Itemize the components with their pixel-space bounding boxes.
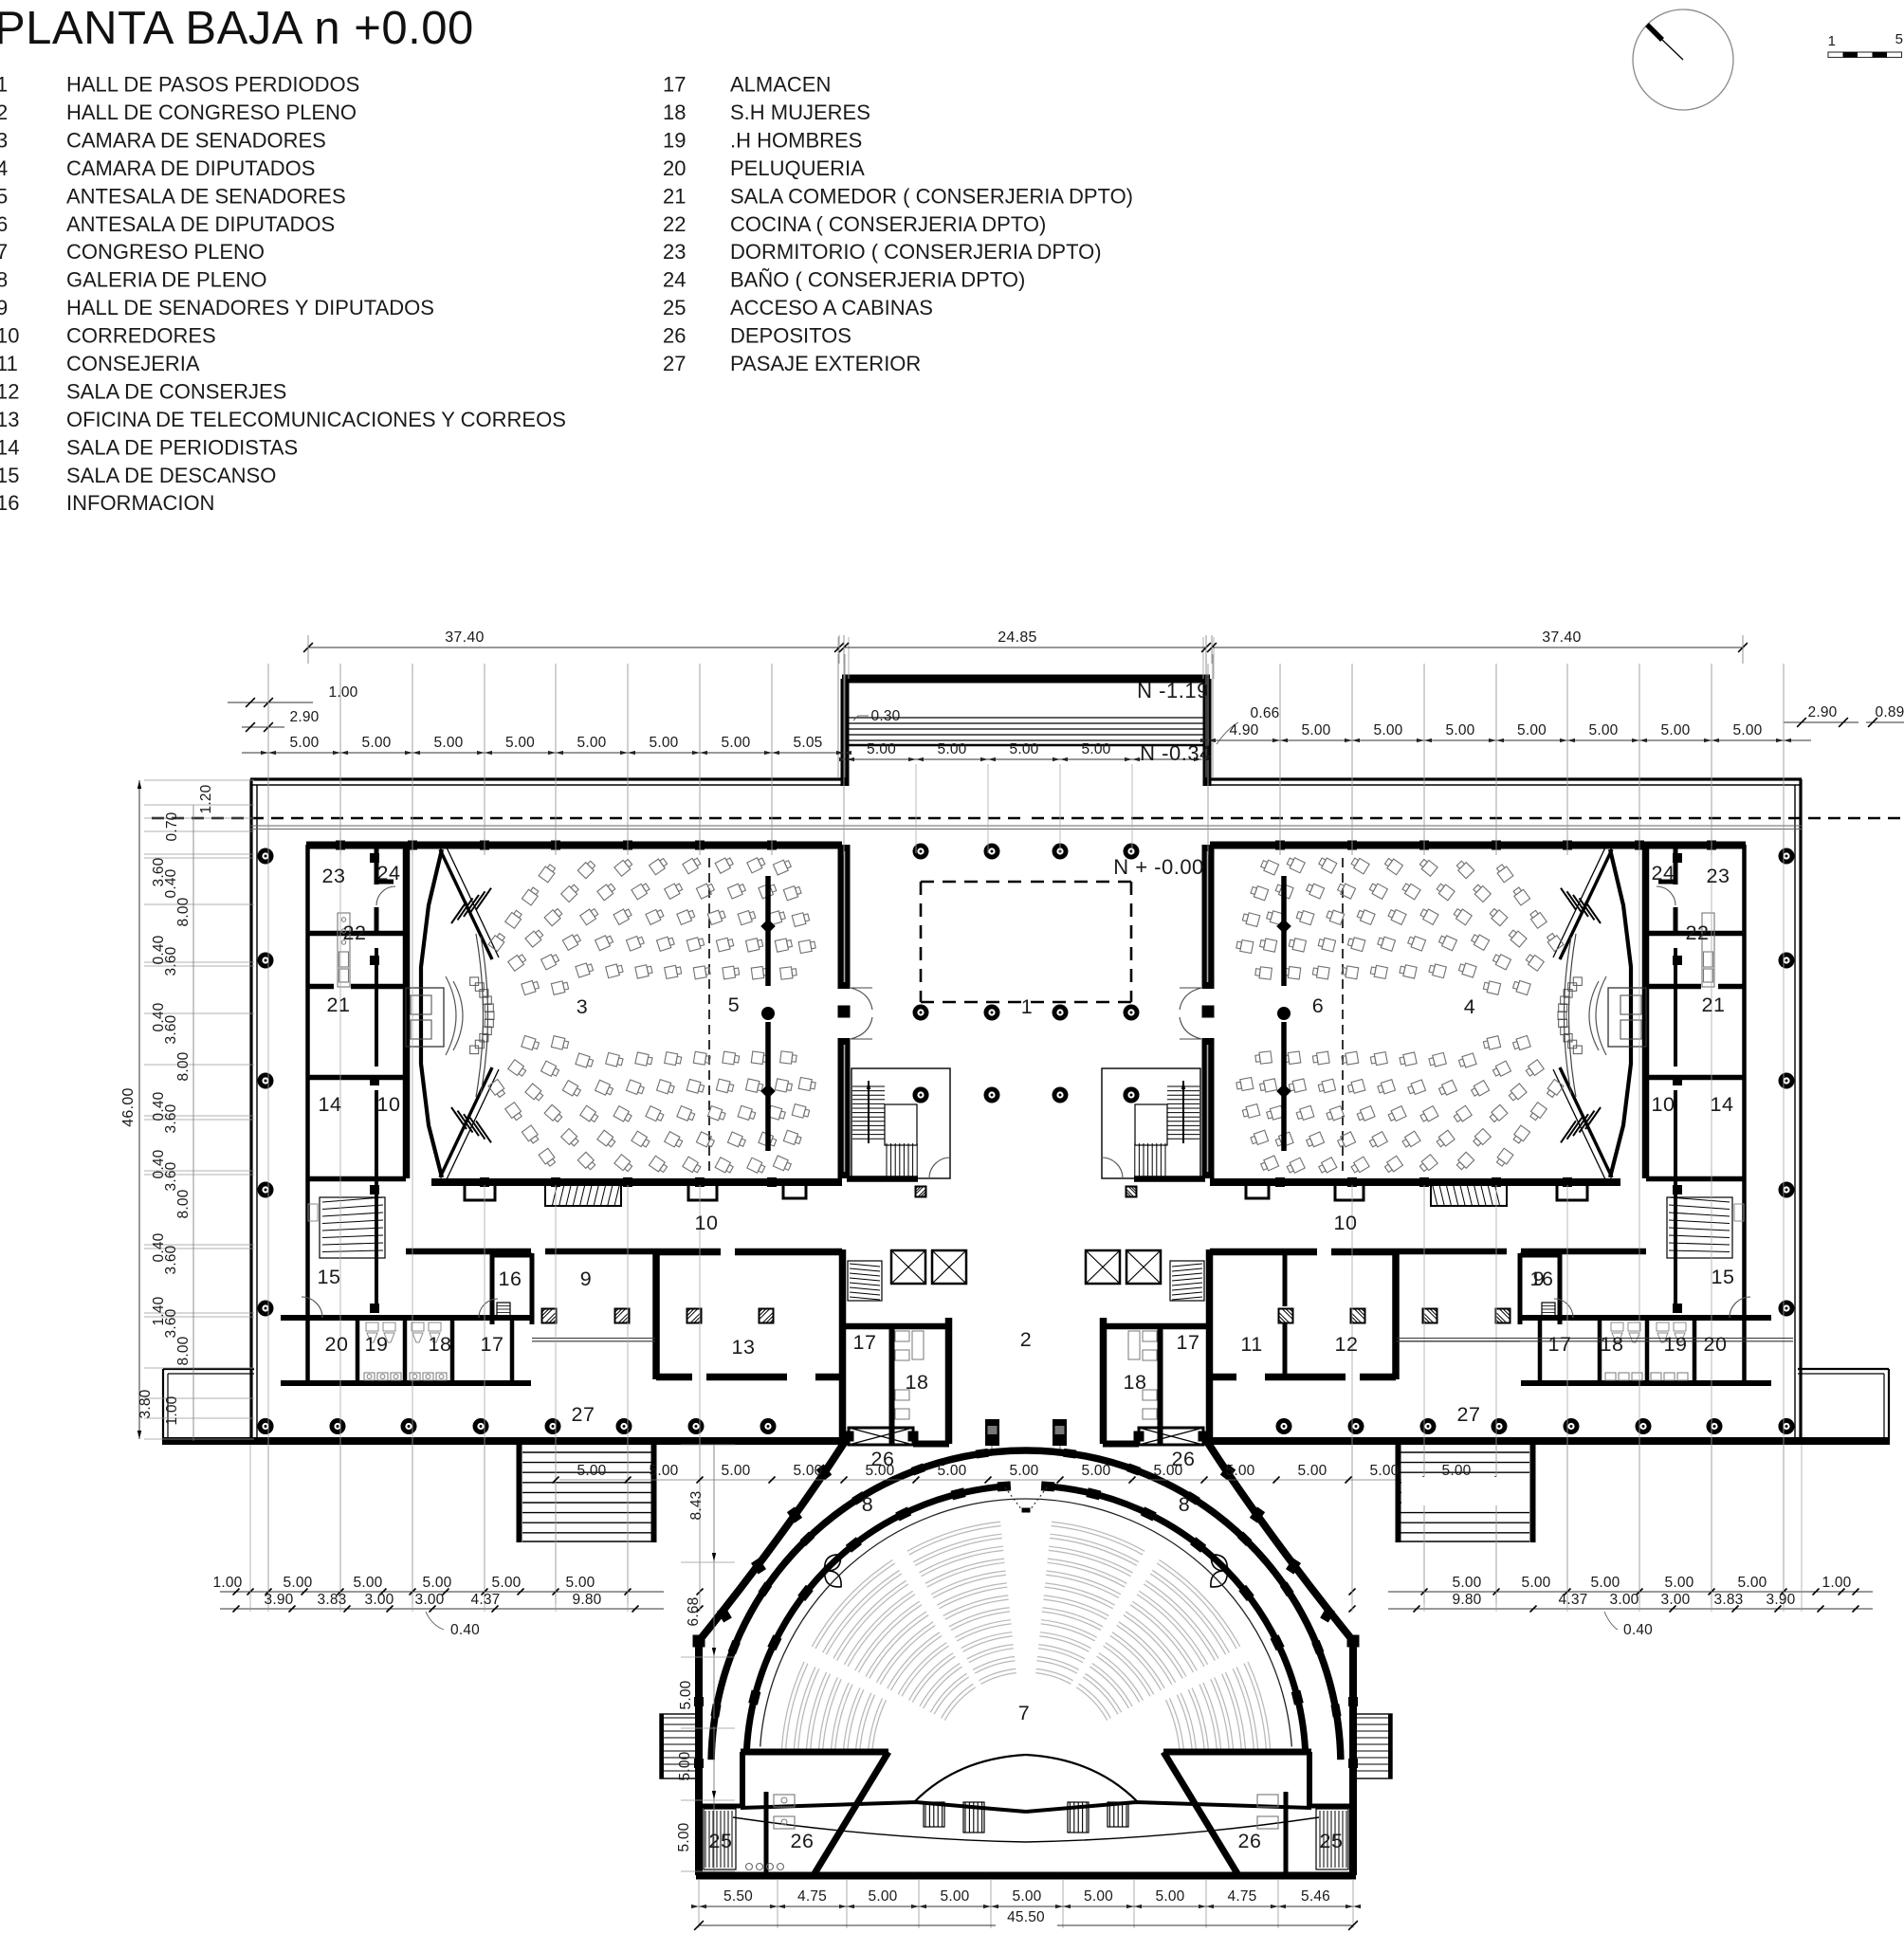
- svg-text:5.00: 5.00: [1084, 1888, 1113, 1905]
- svg-text:9: 9: [0, 296, 8, 319]
- svg-text:37.40: 37.40: [1542, 629, 1582, 646]
- svg-text:5.00: 5.00: [566, 1575, 595, 1591]
- svg-text:3.60: 3.60: [163, 1161, 179, 1191]
- svg-text:4.37: 4.37: [1559, 1592, 1588, 1608]
- svg-text:5.00: 5.00: [1591, 1575, 1620, 1591]
- svg-text:6: 6: [1312, 994, 1324, 1017]
- svg-text:5.00: 5.00: [869, 1888, 898, 1905]
- svg-text:21: 21: [327, 994, 351, 1016]
- svg-text:1.20: 1.20: [198, 784, 214, 813]
- svg-text:14: 14: [1711, 1093, 1734, 1116]
- svg-text:5.00: 5.00: [577, 735, 607, 751]
- svg-text:5.00: 5.00: [1374, 722, 1403, 739]
- svg-text:5.00: 5.00: [1665, 1575, 1694, 1591]
- svg-text:3.60: 3.60: [163, 1103, 179, 1133]
- svg-text:5.50: 5.50: [723, 1888, 753, 1905]
- svg-text:10: 10: [695, 1212, 719, 1234]
- svg-text:3.00: 3.00: [415, 1592, 445, 1608]
- svg-text:SALA DE DESCANSO: SALA DE DESCANSO: [66, 464, 276, 487]
- svg-text:27: 27: [663, 352, 686, 375]
- svg-text:5.00: 5.00: [492, 1575, 522, 1591]
- svg-text:10: 10: [1652, 1093, 1675, 1116]
- svg-text:15: 15: [0, 464, 19, 487]
- svg-text:5.00: 5.00: [722, 1463, 751, 1479]
- svg-text:0.66: 0.66: [1251, 705, 1280, 721]
- svg-text:N + -0.00: N + -0.00: [1113, 855, 1204, 879]
- svg-text:5.00: 5.00: [1589, 722, 1619, 739]
- svg-text:S.H MUJERES: S.H MUJERES: [730, 100, 870, 124]
- svg-text:5.00: 5.00: [1156, 1888, 1185, 1905]
- svg-text:3: 3: [577, 995, 588, 1018]
- svg-text:5.00: 5.00: [577, 1463, 607, 1479]
- svg-text:17: 17: [1177, 1331, 1200, 1354]
- svg-text:10: 10: [1334, 1212, 1358, 1234]
- svg-text:24.85: 24.85: [998, 629, 1037, 646]
- svg-text:13: 13: [732, 1336, 756, 1359]
- svg-text:N -1.19: N -1.19: [1137, 679, 1209, 702]
- svg-text:8.43: 8.43: [688, 1491, 705, 1521]
- svg-text:ANTESALA DE SENADORES: ANTESALA DE SENADORES: [66, 184, 346, 208]
- svg-text:5.00: 5.00: [938, 741, 967, 757]
- svg-text:HALL DE PASOS PERDIODOS: HALL DE PASOS PERDIODOS: [66, 73, 359, 97]
- svg-text:19: 19: [1664, 1333, 1688, 1356]
- svg-text:0.40: 0.40: [450, 1622, 480, 1638]
- svg-text:0.30: 0.30: [871, 708, 901, 724]
- svg-text:DEPOSITOS: DEPOSITOS: [730, 324, 851, 348]
- svg-text:23: 23: [1707, 865, 1730, 887]
- svg-text:SALA DE CONSERJES: SALA DE CONSERJES: [66, 379, 286, 403]
- svg-text:CAMARA DE DIPUTADOS: CAMARA DE DIPUTADOS: [66, 156, 315, 180]
- svg-text:2.90: 2.90: [290, 709, 320, 725]
- svg-text:3.00: 3.00: [1610, 1592, 1639, 1608]
- svg-text:46.00: 46.00: [120, 1087, 137, 1127]
- svg-text:12: 12: [1335, 1333, 1359, 1356]
- svg-text:5.00: 5.00: [794, 1463, 823, 1479]
- svg-text:9: 9: [580, 1267, 592, 1290]
- svg-text:22: 22: [663, 212, 686, 236]
- svg-text:8.00: 8.00: [175, 1051, 192, 1081]
- svg-text:1: 1: [1828, 33, 1837, 49]
- svg-text:5.00: 5.00: [1733, 722, 1763, 739]
- svg-text:5.00: 5.00: [676, 1822, 692, 1851]
- svg-text:17: 17: [481, 1333, 504, 1356]
- svg-text:5.00: 5.00: [1226, 1463, 1255, 1479]
- svg-text:5.00: 5.00: [1738, 1575, 1767, 1591]
- svg-text:16: 16: [0, 491, 19, 515]
- svg-text:5.00: 5.00: [290, 735, 320, 751]
- svg-text:17: 17: [853, 1331, 877, 1354]
- svg-text:8: 8: [862, 1493, 873, 1516]
- svg-text:5.00: 5.00: [434, 735, 464, 751]
- svg-text:PLANTA BAJA n +0.00: PLANTA BAJA n +0.00: [0, 3, 474, 54]
- svg-text:OFICINA DE TELECOMUNICACIONES: OFICINA DE TELECOMUNICACIONES Y CORREOS: [66, 408, 566, 431]
- svg-text:5.00: 5.00: [722, 735, 751, 751]
- svg-text:BAÑO ( CONSERJERIA DPTO): BAÑO ( CONSERJERIA DPTO): [730, 268, 1025, 292]
- svg-text:3.80: 3.80: [137, 1389, 154, 1418]
- svg-text:5.00: 5.00: [1013, 1888, 1042, 1905]
- svg-text:15: 15: [1712, 1266, 1735, 1288]
- svg-text:5.00: 5.00: [505, 735, 535, 751]
- svg-text:5.00: 5.00: [423, 1575, 452, 1591]
- svg-text:7: 7: [1018, 1702, 1030, 1724]
- svg-text:1: 1: [0, 73, 8, 97]
- svg-text:18: 18: [429, 1333, 452, 1356]
- svg-text:SALA DE PERIODISTAS: SALA DE PERIODISTAS: [66, 435, 298, 459]
- svg-text:5: 5: [1895, 31, 1904, 47]
- svg-text:3: 3: [0, 128, 8, 152]
- svg-text:N -0.34: N -0.34: [1140, 741, 1212, 765]
- svg-text:4: 4: [1464, 995, 1475, 1018]
- svg-text:5.00: 5.00: [867, 741, 896, 757]
- svg-text:20: 20: [663, 156, 686, 180]
- svg-text:5.00: 5.00: [1010, 741, 1039, 757]
- svg-text:5.00: 5.00: [1298, 1463, 1327, 1479]
- svg-text:4.37: 4.37: [471, 1592, 501, 1608]
- svg-text:5: 5: [728, 994, 740, 1016]
- svg-text:1.00: 1.00: [213, 1575, 243, 1591]
- svg-text:PELUQUERIA: PELUQUERIA: [730, 156, 865, 180]
- svg-text:ALMACEN: ALMACEN: [730, 73, 831, 97]
- svg-text:5.00: 5.00: [678, 1680, 694, 1709]
- svg-text:17: 17: [1548, 1333, 1572, 1356]
- svg-text:26: 26: [791, 1830, 815, 1852]
- svg-text:HALL DE SENADORES Y DIPUTADOS: HALL DE SENADORES Y DIPUTADOS: [66, 296, 434, 319]
- svg-text:5.00: 5.00: [362, 735, 392, 751]
- svg-text:10: 10: [377, 1093, 401, 1116]
- svg-text:45.50: 45.50: [1007, 1909, 1045, 1925]
- svg-text:26: 26: [871, 1448, 895, 1470]
- svg-text:10: 10: [0, 324, 19, 348]
- svg-text:ANTESALA DE DIPUTADOS: ANTESALA DE DIPUTADOS: [66, 212, 335, 236]
- svg-text:1.00: 1.00: [1822, 1575, 1852, 1591]
- svg-text:22: 22: [343, 921, 367, 944]
- svg-text:6: 6: [0, 212, 8, 236]
- svg-text:3.83: 3.83: [1714, 1592, 1744, 1608]
- svg-text:CONGRESO PLENO: CONGRESO PLENO: [66, 240, 265, 264]
- svg-text:9.80: 9.80: [573, 1592, 602, 1608]
- svg-text:5.00: 5.00: [1661, 722, 1691, 739]
- svg-text:0.40: 0.40: [163, 868, 179, 898]
- svg-text:26: 26: [1238, 1830, 1262, 1852]
- svg-text:3.90: 3.90: [1767, 1592, 1796, 1608]
- svg-text:24: 24: [1652, 862, 1675, 884]
- svg-text:18: 18: [1601, 1333, 1624, 1356]
- svg-text:24: 24: [663, 268, 686, 292]
- svg-text:21: 21: [663, 184, 686, 208]
- svg-text:9.80: 9.80: [1453, 1592, 1482, 1608]
- svg-text:GALERIA DE PLENO: GALERIA DE PLENO: [66, 268, 267, 292]
- svg-text:18: 18: [1124, 1371, 1147, 1394]
- svg-text:DORMITORIO ( CONSERJERIA DPTO): DORMITORIO ( CONSERJERIA DPTO): [730, 240, 1102, 264]
- svg-text:CONSEJERIA: CONSEJERIA: [66, 352, 200, 375]
- svg-text:ACCESO A CABINAS: ACCESO A CABINAS: [730, 296, 933, 319]
- svg-text:5.00: 5.00: [1517, 722, 1547, 739]
- svg-text:20: 20: [1704, 1333, 1728, 1356]
- svg-text:4: 4: [0, 156, 8, 180]
- svg-text:23: 23: [663, 240, 686, 264]
- svg-text:5.00: 5.00: [650, 1463, 679, 1479]
- svg-text:CORREDORES: CORREDORES: [66, 324, 216, 348]
- svg-text:13: 13: [0, 408, 19, 431]
- svg-text:2: 2: [1020, 1328, 1032, 1351]
- svg-text:5.00: 5.00: [1370, 1463, 1400, 1479]
- svg-text:19: 19: [365, 1333, 389, 1356]
- svg-text:8.00: 8.00: [175, 1189, 192, 1218]
- svg-text:HALL DE CONGRESO PLENO: HALL DE CONGRESO PLENO: [66, 100, 357, 124]
- svg-text:4.90: 4.90: [1230, 722, 1259, 739]
- svg-text:5: 5: [0, 184, 8, 208]
- svg-text:.H HOMBRES: .H HOMBRES: [730, 128, 862, 152]
- svg-text:5.00: 5.00: [938, 1463, 967, 1479]
- svg-text:5.00: 5.00: [1522, 1575, 1551, 1591]
- svg-text:17: 17: [663, 73, 686, 97]
- svg-text:7: 7: [0, 240, 8, 264]
- svg-text:5.46: 5.46: [1301, 1888, 1330, 1905]
- svg-text:37.40: 37.40: [445, 629, 485, 646]
- svg-text:2.90: 2.90: [1808, 704, 1838, 720]
- svg-text:3.90: 3.90: [265, 1592, 294, 1608]
- svg-text:19: 19: [663, 128, 686, 152]
- svg-text:5.00: 5.00: [1082, 741, 1111, 757]
- svg-text:24: 24: [377, 862, 401, 884]
- svg-text:0.70: 0.70: [164, 811, 180, 841]
- svg-text:3.83: 3.83: [318, 1592, 347, 1608]
- svg-text:5.05: 5.05: [794, 735, 823, 751]
- svg-text:25: 25: [663, 296, 686, 319]
- svg-text:27: 27: [1457, 1403, 1481, 1426]
- svg-text:8.00: 8.00: [175, 897, 192, 926]
- svg-text:5.00: 5.00: [1446, 722, 1475, 739]
- svg-text:14: 14: [319, 1093, 342, 1116]
- svg-text:14: 14: [0, 435, 19, 459]
- svg-text:3.60: 3.60: [163, 946, 179, 976]
- svg-text:8: 8: [0, 268, 8, 292]
- svg-text:12: 12: [0, 379, 19, 403]
- svg-text:5.00: 5.00: [941, 1888, 970, 1905]
- svg-text:5.00: 5.00: [677, 1751, 693, 1780]
- svg-text:5.00: 5.00: [1010, 1463, 1039, 1479]
- svg-text:27: 27: [572, 1403, 595, 1426]
- svg-text:18: 18: [663, 100, 686, 124]
- svg-text:11: 11: [1240, 1333, 1262, 1356]
- svg-text:26: 26: [663, 324, 686, 348]
- svg-text:15: 15: [318, 1266, 341, 1288]
- svg-text:9: 9: [1533, 1267, 1545, 1290]
- svg-text:25: 25: [1320, 1830, 1344, 1852]
- svg-text:PASAJE EXTERIOR: PASAJE EXTERIOR: [730, 352, 921, 375]
- svg-text:5.00: 5.00: [1302, 722, 1331, 739]
- svg-text:3.60: 3.60: [163, 1308, 179, 1338]
- svg-text:0.89: 0.89: [1876, 704, 1904, 720]
- svg-text:23: 23: [322, 865, 346, 887]
- svg-text:4.75: 4.75: [797, 1888, 827, 1905]
- svg-text:21: 21: [1702, 994, 1726, 1016]
- svg-text:1.00: 1.00: [164, 1395, 180, 1425]
- svg-text:6.68: 6.68: [686, 1597, 702, 1627]
- svg-text:20: 20: [325, 1333, 349, 1356]
- svg-text:5.00: 5.00: [1453, 1575, 1482, 1591]
- svg-text:1: 1: [1021, 995, 1033, 1018]
- svg-text:CAMARA DE SENADORES: CAMARA DE SENADORES: [66, 128, 326, 152]
- svg-text:0.40: 0.40: [1623, 1622, 1653, 1638]
- svg-text:4.75: 4.75: [1228, 1888, 1257, 1905]
- svg-text:5.00: 5.00: [354, 1575, 383, 1591]
- svg-text:5.00: 5.00: [1442, 1463, 1472, 1479]
- svg-text:22: 22: [1686, 921, 1710, 944]
- svg-text:16: 16: [499, 1267, 522, 1290]
- svg-text:5.00: 5.00: [650, 735, 679, 751]
- svg-text:3.00: 3.00: [365, 1592, 394, 1608]
- svg-text:5.00: 5.00: [1082, 1463, 1111, 1479]
- svg-text:INFORMACION: INFORMACION: [66, 491, 214, 515]
- svg-text:1.00: 1.00: [329, 684, 358, 701]
- svg-text:5.00: 5.00: [284, 1575, 313, 1591]
- svg-text:18: 18: [906, 1371, 929, 1394]
- svg-text:COCINA ( CONSERJERIA DPTO): COCINA ( CONSERJERIA DPTO): [730, 212, 1046, 236]
- svg-text:26: 26: [1172, 1448, 1196, 1470]
- svg-text:2: 2: [0, 100, 8, 124]
- svg-text:3.00: 3.00: [1661, 1592, 1691, 1608]
- svg-text:8.00: 8.00: [175, 1336, 192, 1365]
- svg-text:8: 8: [1179, 1493, 1190, 1516]
- svg-text:3.60: 3.60: [163, 1245, 179, 1274]
- svg-text:3.60: 3.60: [163, 1014, 179, 1044]
- svg-text:SALA COMEDOR ( CONSERJERIA DPT: SALA COMEDOR ( CONSERJERIA DPTO): [730, 184, 1133, 208]
- svg-text:25: 25: [709, 1830, 733, 1852]
- svg-text:11: 11: [0, 352, 18, 375]
